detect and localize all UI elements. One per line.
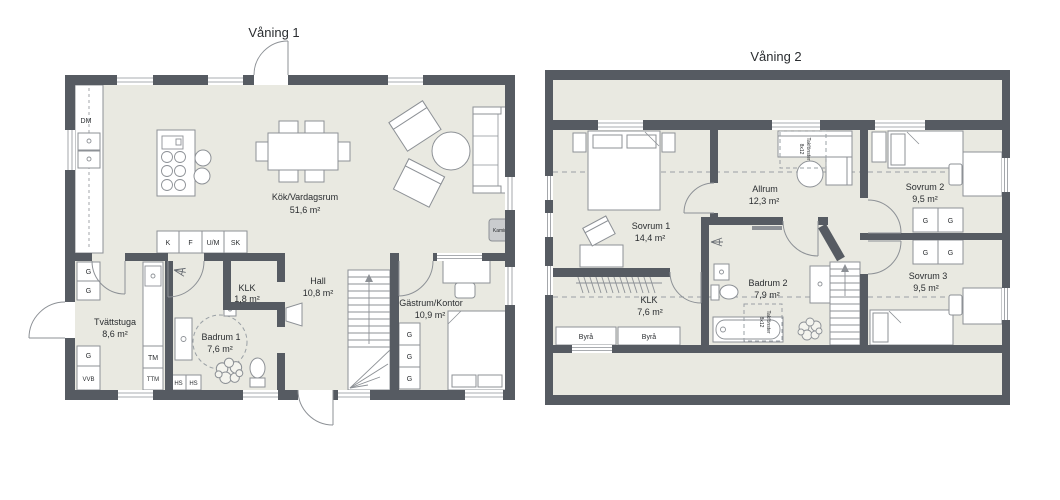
bathroom-cabinet bbox=[810, 266, 830, 303]
room-area-gastrum: 10,9 m² bbox=[415, 310, 446, 320]
wardrobe-label-g: G bbox=[923, 218, 928, 225]
round-table bbox=[797, 161, 823, 187]
wardrobe-label-g: G bbox=[948, 250, 953, 257]
hs-label: HS bbox=[189, 381, 197, 387]
sofa bbox=[473, 107, 507, 193]
wardrobe-label-g: G bbox=[923, 250, 928, 257]
room-label-klk2: KLK bbox=[640, 295, 657, 305]
room-area-klk1: 1,8 m² bbox=[234, 294, 260, 304]
room-area-hall: 10,8 m² bbox=[303, 288, 334, 298]
desk bbox=[443, 260, 490, 283]
room-label-allrum: Allrum bbox=[752, 184, 778, 194]
room-label-klk1: KLK bbox=[238, 283, 255, 293]
room-area-kok: 51,6 m² bbox=[290, 205, 321, 215]
room-area-sovrum3: 9,5 m² bbox=[913, 283, 939, 293]
toilet bbox=[720, 285, 738, 299]
wardrobe-label-g: G bbox=[86, 288, 91, 295]
floorplan-svg: Våning 1 bbox=[0, 0, 1060, 500]
closet-label-um: U/M bbox=[207, 240, 220, 247]
dryer-label: TTM bbox=[147, 377, 159, 383]
room-label-kok: Kök/Vardagsrum bbox=[272, 192, 338, 202]
floor1-title: Våning 1 bbox=[248, 25, 299, 40]
wardrobe-label-g: G bbox=[86, 269, 91, 276]
stairs-floor1 bbox=[348, 270, 390, 390]
dishwasher-label: DM bbox=[81, 118, 92, 125]
desk bbox=[963, 288, 1002, 324]
wardrobe-label-g: G bbox=[86, 353, 91, 360]
room-area-klk2: 7,6 m² bbox=[637, 307, 663, 317]
room-label-badrum1: Badrum 1 bbox=[201, 332, 240, 342]
wardrobe-label-g: G bbox=[948, 218, 953, 225]
stairs-floor2 bbox=[830, 262, 860, 345]
floorplan-image: Våning 1 bbox=[0, 0, 1060, 500]
water-heater-label: VVB bbox=[82, 377, 94, 383]
floor1-plan: Våning 1 bbox=[29, 25, 515, 425]
skylight-size: 8x12 bbox=[798, 144, 804, 155]
washbasin bbox=[714, 264, 729, 280]
wardrobe-label-g: G bbox=[407, 376, 412, 383]
closet-label-sk: SK bbox=[231, 240, 241, 247]
closet-label-k: K bbox=[166, 240, 171, 247]
nightstand bbox=[573, 133, 586, 152]
wardrobe-label-g: G bbox=[407, 354, 412, 361]
desk-chair bbox=[949, 164, 962, 185]
skylight-size: 8x12 bbox=[758, 317, 764, 328]
room-label-sovrum3: Sovrum 3 bbox=[909, 271, 948, 281]
wall-shelf bbox=[752, 226, 782, 230]
desk bbox=[580, 245, 623, 267]
floor2-plan: Våning 2 bbox=[545, 49, 1010, 405]
floor2-title: Våning 2 bbox=[750, 49, 801, 64]
room-label-tvattstuga: Tvättstuga bbox=[94, 317, 136, 327]
wardrobe-label-g: G bbox=[407, 332, 412, 339]
room-label-gastrum: Gästrum/Kontor bbox=[399, 298, 463, 308]
dresser-label: Byrå bbox=[642, 333, 657, 341]
hs-label: HS bbox=[174, 381, 182, 387]
room-label-sovrum2: Sovrum 2 bbox=[906, 182, 945, 192]
room-area-badrum2: 7,9 m² bbox=[754, 290, 780, 300]
kitchen-island bbox=[157, 130, 195, 196]
nightstand bbox=[662, 133, 675, 152]
room-label-sovrum1: Sovrum 1 bbox=[632, 221, 671, 231]
bar-stool bbox=[195, 150, 211, 166]
room-area-tvattstuga: 8,6 m² bbox=[102, 329, 128, 339]
washer-label: TM bbox=[148, 355, 158, 362]
nightstand bbox=[872, 132, 886, 162]
coffee-table bbox=[432, 132, 470, 170]
closet-label-f: F bbox=[188, 240, 192, 247]
bathtub bbox=[713, 317, 783, 342]
skylight-label: Takfönster bbox=[765, 310, 771, 333]
toilet bbox=[250, 358, 265, 378]
room-label-hall: Hall bbox=[310, 276, 326, 286]
kitchen-counter bbox=[75, 85, 103, 253]
room-area-sovrum1: 14,4 m² bbox=[635, 233, 666, 243]
desk bbox=[963, 152, 1002, 196]
desk-chair bbox=[949, 295, 962, 315]
skylight-label: Takfönster bbox=[805, 137, 811, 160]
room-area-allrum: 12,3 m² bbox=[749, 196, 780, 206]
bar-stool bbox=[194, 168, 210, 184]
desk-chair bbox=[455, 283, 475, 298]
room-area-badrum1: 7,6 m² bbox=[207, 344, 233, 354]
dresser-label: Byrå bbox=[579, 333, 594, 341]
room-label-badrum2: Badrum 2 bbox=[748, 278, 787, 288]
room-area-sovrum2: 9,5 m² bbox=[912, 194, 938, 204]
